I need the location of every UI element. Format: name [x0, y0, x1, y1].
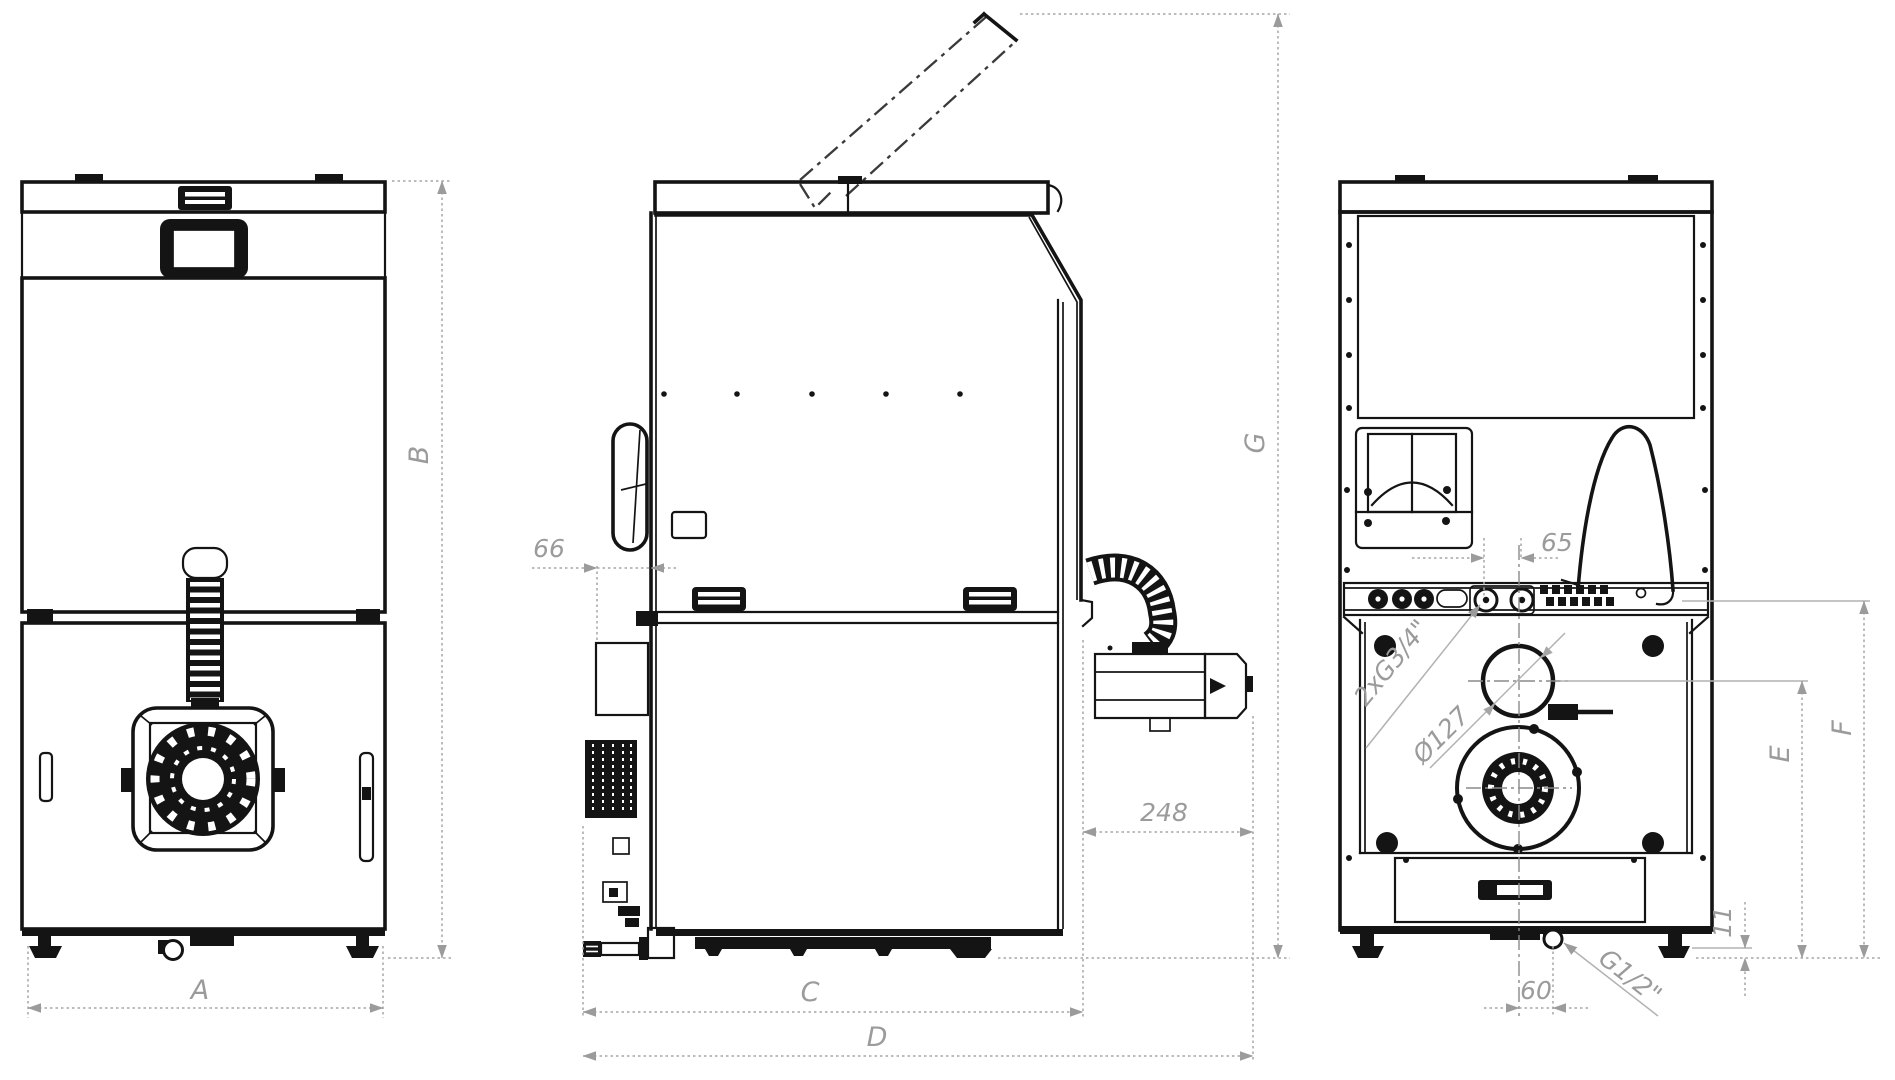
dim-label-11: 11	[1708, 906, 1737, 938]
boiler-three-view-drawing: A B	[0, 0, 1895, 1080]
dim-label-248: 248	[1140, 798, 1188, 827]
front-view: A B	[22, 174, 452, 1018]
hopper-front-panel	[22, 278, 385, 612]
dimension-E: E	[1560, 681, 1808, 958]
burner-side-profile	[585, 643, 648, 927]
lid-handle	[178, 186, 232, 210]
side-view: 66 C D 248 G	[532, 14, 1290, 1062]
sensor-plug	[1548, 704, 1613, 720]
leader-G12: G1/2"	[1564, 943, 1667, 1016]
side-base-rail	[695, 937, 992, 958]
label-G12: G1/2"	[1593, 943, 1667, 1010]
connection-strip	[1344, 583, 1708, 615]
dimension-60: 60	[1484, 946, 1588, 1016]
side-body-outline	[636, 213, 1092, 936]
strip-slot	[1437, 590, 1467, 607]
dim-label-b: B	[404, 446, 435, 465]
technical-drawing-page: A B	[0, 0, 1895, 1080]
side-vent-slots	[692, 587, 1017, 611]
drain-fitting-front	[158, 933, 234, 960]
small-port	[1637, 589, 1646, 598]
dim-label-f: F	[1827, 720, 1858, 736]
rating-plate	[672, 512, 706, 538]
display-screen	[160, 219, 248, 278]
left-door-slot	[40, 753, 52, 801]
dimension-F: F	[1682, 601, 1870, 958]
dim-label-c: C	[801, 977, 820, 1008]
right-door-handle	[360, 753, 373, 861]
feeder-hose	[1090, 567, 1163, 644]
rear-top-cap	[1340, 182, 1712, 212]
dim-label-d: D	[867, 1022, 888, 1053]
pellet-feed-hose	[183, 548, 227, 708]
auger-motor-assembly	[1095, 642, 1253, 731]
draft-fan-housing	[1356, 428, 1472, 548]
dim-label-65: 65	[1541, 528, 1573, 557]
dimension-C: C	[583, 640, 1083, 1018]
dimension-D: D	[583, 716, 1253, 1062]
rear-upper-panel	[1358, 216, 1694, 418]
drain-valve-G12	[1490, 930, 1562, 948]
dimension-248: 248	[1083, 798, 1253, 832]
dim-label-e: E	[1765, 745, 1796, 762]
dim-label-66: 66	[533, 534, 565, 563]
side-panel-screws	[661, 391, 963, 397]
burner-fan-impeller	[146, 722, 260, 836]
dimension-11: 11	[1692, 902, 1752, 996]
dimension-B: B	[388, 181, 452, 958]
cable-glands	[1368, 589, 1434, 609]
ash-drawer	[1395, 858, 1645, 922]
dimension-A: A	[28, 946, 383, 1018]
side-top-cap	[655, 176, 1061, 213]
burner-assembly	[121, 708, 285, 850]
open-lid-dashed	[800, 14, 1016, 208]
side-door-handle	[613, 424, 647, 550]
dim-label-g: G	[1240, 433, 1271, 454]
dim-label-60: 60	[1520, 976, 1552, 1005]
dim-label-a: A	[189, 975, 209, 1006]
rear-view: 65 2xG3/4" Ø127 E F	[1340, 175, 1880, 1016]
exhaust-fan	[1453, 724, 1582, 854]
curved-duct	[1562, 427, 1673, 605]
